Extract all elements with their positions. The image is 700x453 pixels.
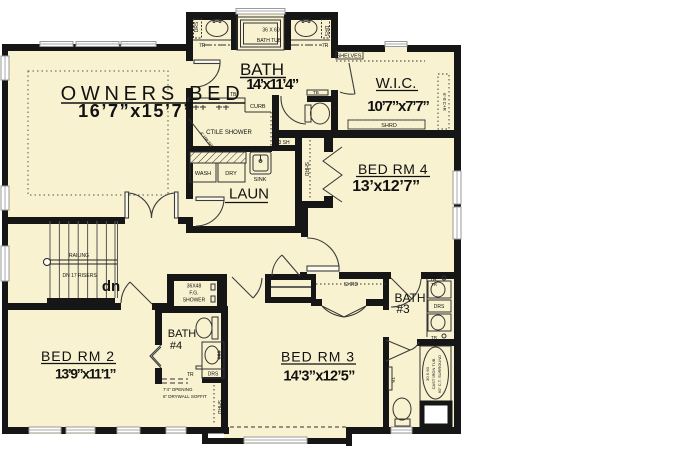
svg-text:BATH TUB: BATH TUB <box>257 38 282 44</box>
svg-text:CAST IRON TUB: CAST IRON TUB <box>431 358 436 389</box>
svg-text:TR: TR <box>187 372 194 378</box>
svg-text:TR: TR <box>431 282 438 287</box>
svg-text:13’x12’7”: 13’x12’7” <box>352 178 420 195</box>
svg-text:#4: #4 <box>170 340 182 352</box>
svg-text:DRS: DRS <box>434 304 445 310</box>
svg-text:6’-8 C+R: 6’-8 C+R <box>442 93 447 112</box>
svg-text:dn: dn <box>102 278 120 295</box>
svg-text:13’9”x11’1”: 13’9”x11’1” <box>55 366 116 382</box>
svg-text:7R: 7R <box>322 43 329 49</box>
svg-text:6” DRYWALL SOFFIT: 6” DRYWALL SOFFIT <box>163 394 207 399</box>
svg-text:SHOWER: SHOWER <box>183 298 206 304</box>
svg-text:LAUN: LAUN <box>229 186 269 203</box>
svg-text:7R: 7R <box>199 43 206 49</box>
svg-text:WASH: WASH <box>195 171 211 177</box>
svg-text:TB: TB <box>313 90 319 95</box>
svg-text:DRS: DRS <box>208 372 219 378</box>
svg-text:DN 17 RISERS: DN 17 RISERS <box>63 273 98 279</box>
svg-text:DRS: DRS <box>194 21 200 32</box>
svg-text:DRS: DRS <box>323 26 329 37</box>
svg-text:DRY: DRY <box>225 171 237 177</box>
svg-text:SHRD: SHRD <box>381 123 397 129</box>
svg-text:3 SH: 3 SH <box>278 140 290 146</box>
svg-text:60” C.T. SURROUND: 60” C.T. SURROUND <box>437 355 442 393</box>
svg-text:CURB: CURB <box>250 104 266 110</box>
svg-text:BED RM 4: BED RM 4 <box>358 161 428 177</box>
svg-text:SHRD: SHRD <box>303 162 309 177</box>
svg-text:TR: TR <box>431 335 438 340</box>
svg-text:SINK: SINK <box>254 177 267 183</box>
svg-text:SHRD: SHRD <box>216 400 222 415</box>
svg-text:16’7”x15’7”: 16’7”x15’7” <box>78 101 194 121</box>
svg-text:F.G.: F.G. <box>189 291 198 297</box>
svg-text:BED RM 2: BED RM 2 <box>41 348 115 364</box>
svg-text:10’7”x7’7”: 10’7”x7’7” <box>367 98 429 115</box>
svg-text:W.I.C.: W.I.C. <box>376 75 417 92</box>
svg-text:SHELVES: SHELVES <box>337 54 362 60</box>
svg-text:TB: TB <box>391 377 396 383</box>
svg-text:30 X 60: 30 X 60 <box>425 366 430 381</box>
svg-text:BED RM 3: BED RM 3 <box>281 349 355 365</box>
svg-text:36 X 60: 36 X 60 <box>262 28 279 34</box>
svg-text:RAILING: RAILING <box>69 253 89 259</box>
svg-text:#3: #3 <box>396 302 410 316</box>
svg-text:SHRD: SHRD <box>344 282 359 288</box>
svg-text:CTILE SHOWER: CTILE SHOWER <box>206 130 252 136</box>
svg-text:14’x11’4”: 14’x11’4” <box>246 76 299 93</box>
svg-text:TB: TB <box>230 92 237 98</box>
svg-text:BATH: BATH <box>168 328 197 340</box>
svg-text:7’4” OPENING: 7’4” OPENING <box>163 387 193 392</box>
svg-text:14’3”x12’5”: 14’3”x12’5” <box>283 369 355 385</box>
svg-text:36X48: 36X48 <box>187 284 202 290</box>
